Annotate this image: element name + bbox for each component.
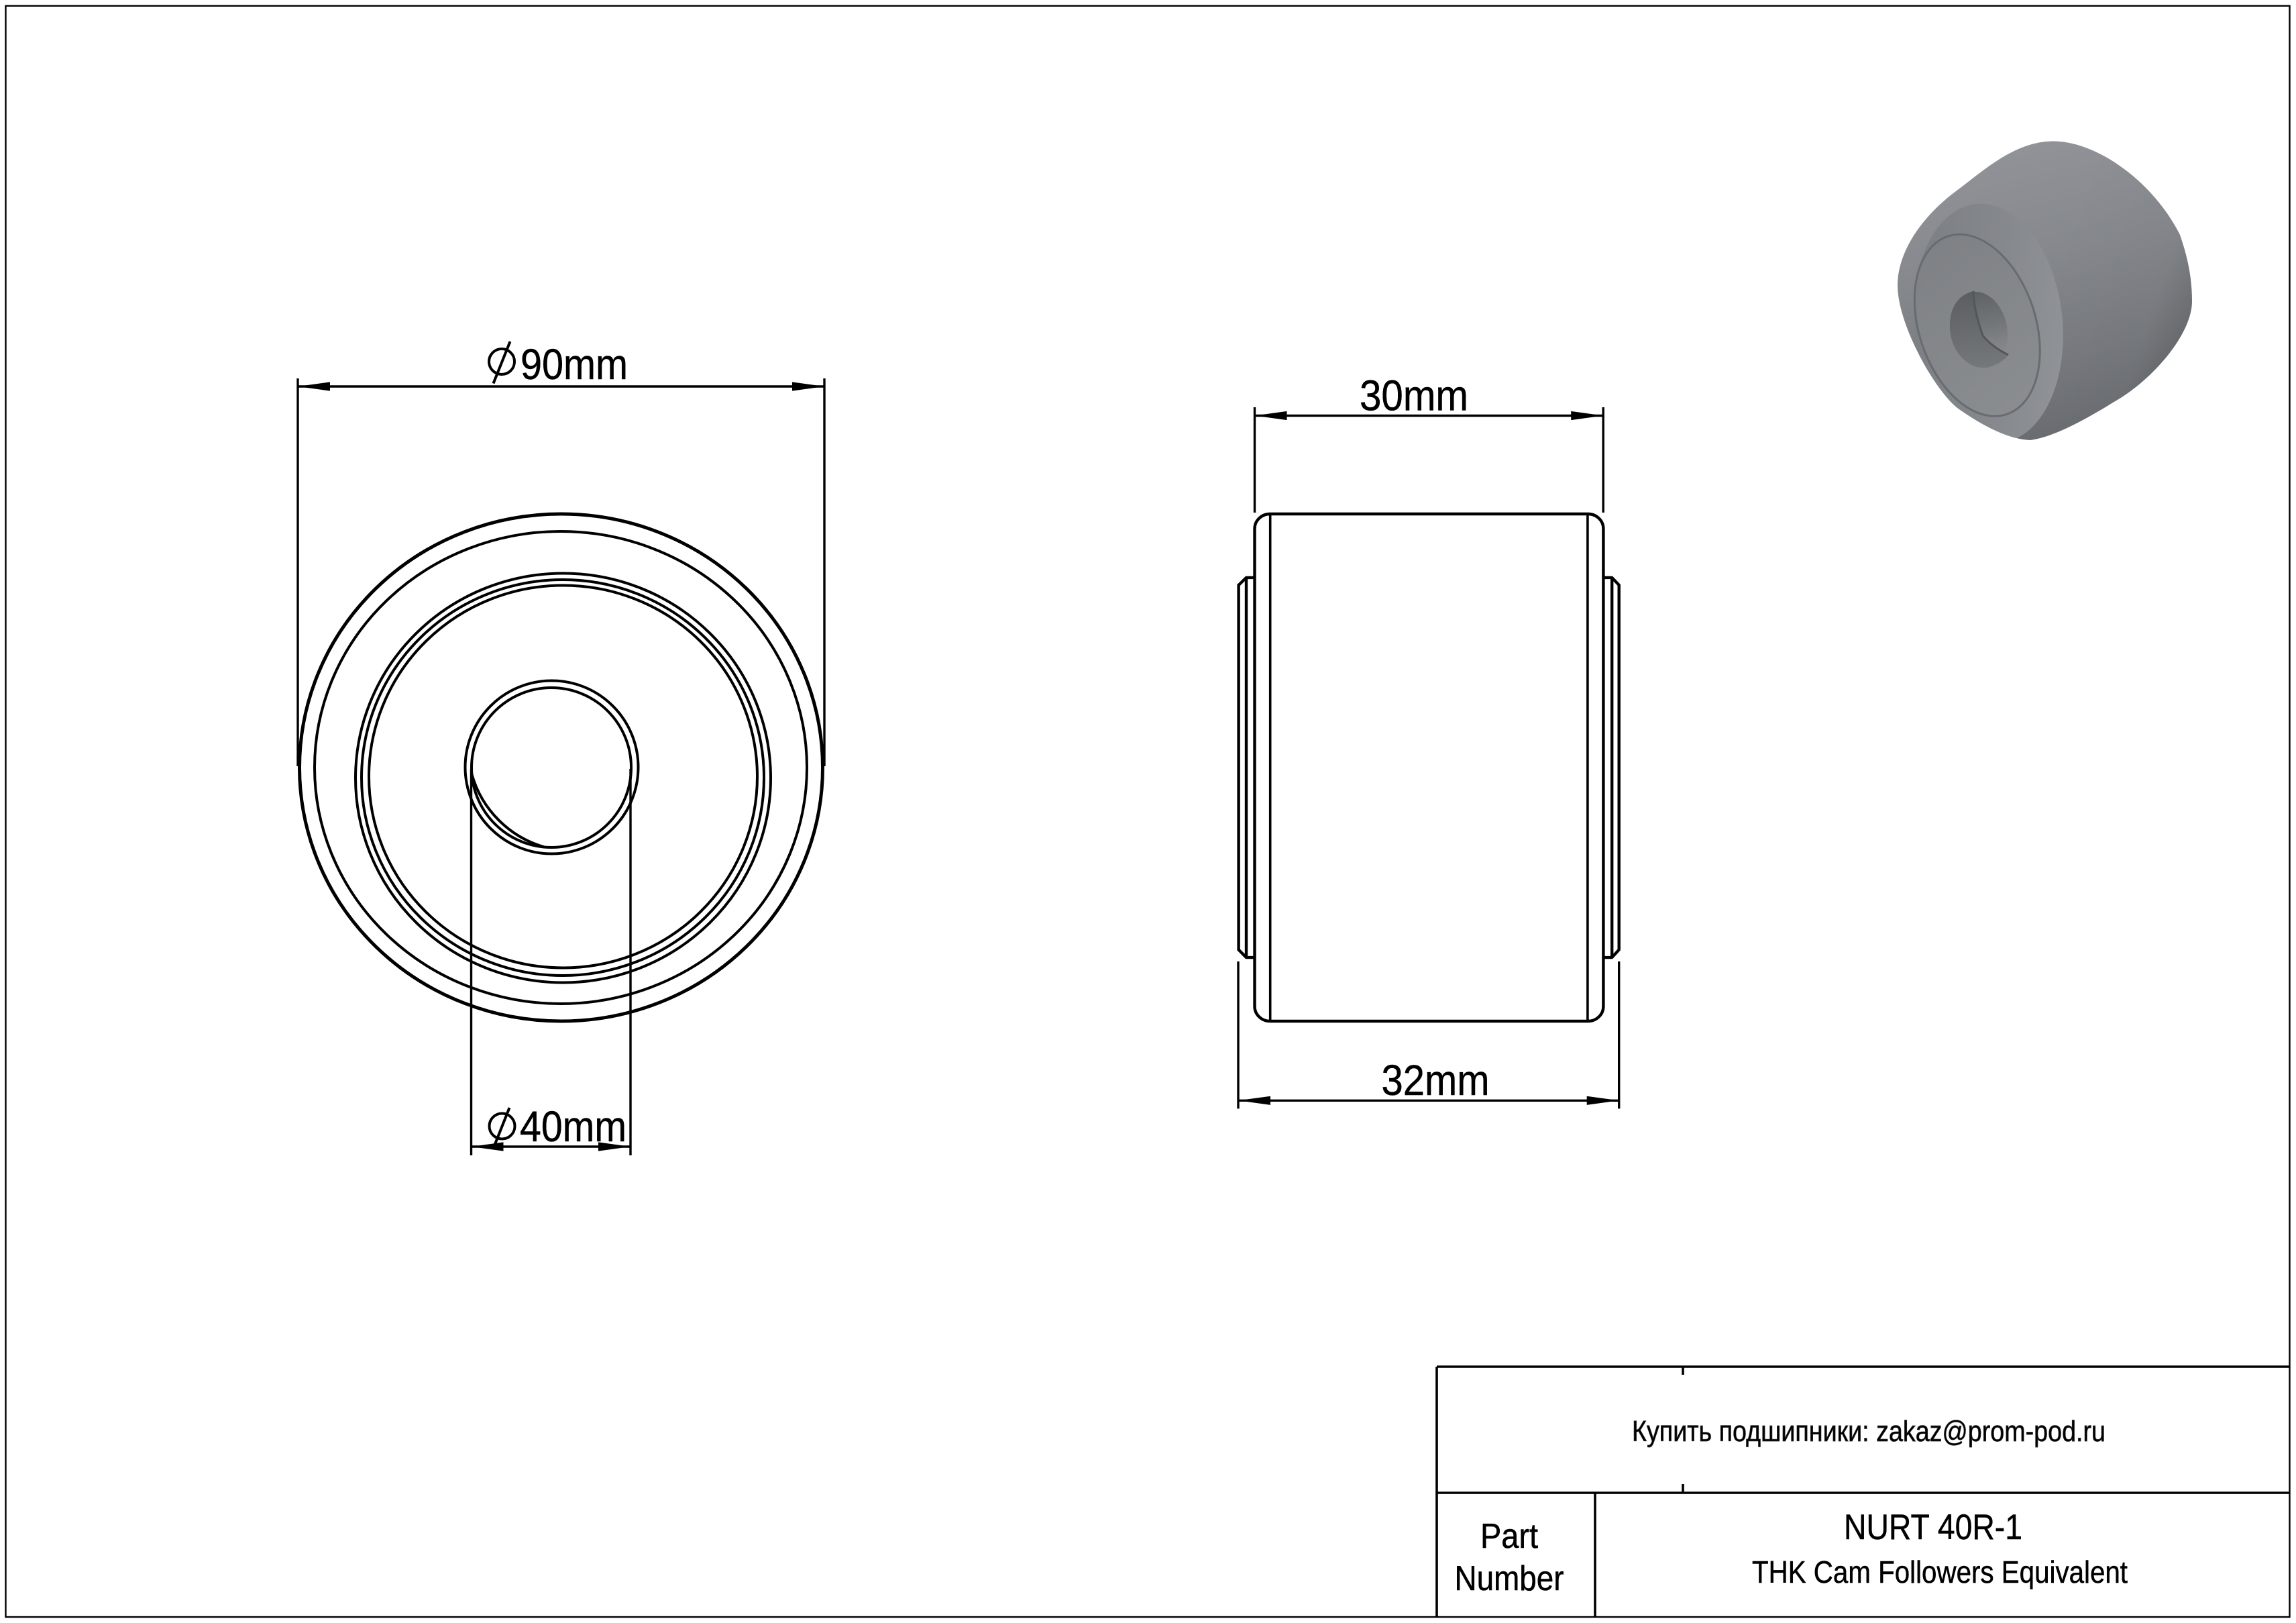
- svg-text:Купить подшипники: zakaz@prom-: Купить подшипники: zakaz@prom-pod.ru: [1632, 1415, 2106, 1448]
- svg-text:40mm: 40mm: [520, 1102, 626, 1151]
- svg-text:NURT 40R-1: NURT 40R-1: [1844, 1508, 2022, 1547]
- svg-text:90mm: 90mm: [521, 340, 628, 388]
- svg-text:Part: Part: [1480, 1517, 1538, 1556]
- svg-text:Number: Number: [1455, 1559, 1564, 1598]
- svg-text:THK Cam Followers Equivalent: THK Cam Followers Equivalent: [1752, 1555, 2128, 1589]
- svg-text:32mm: 32mm: [1382, 1056, 1490, 1104]
- svg-text:30mm: 30mm: [1360, 372, 1468, 420]
